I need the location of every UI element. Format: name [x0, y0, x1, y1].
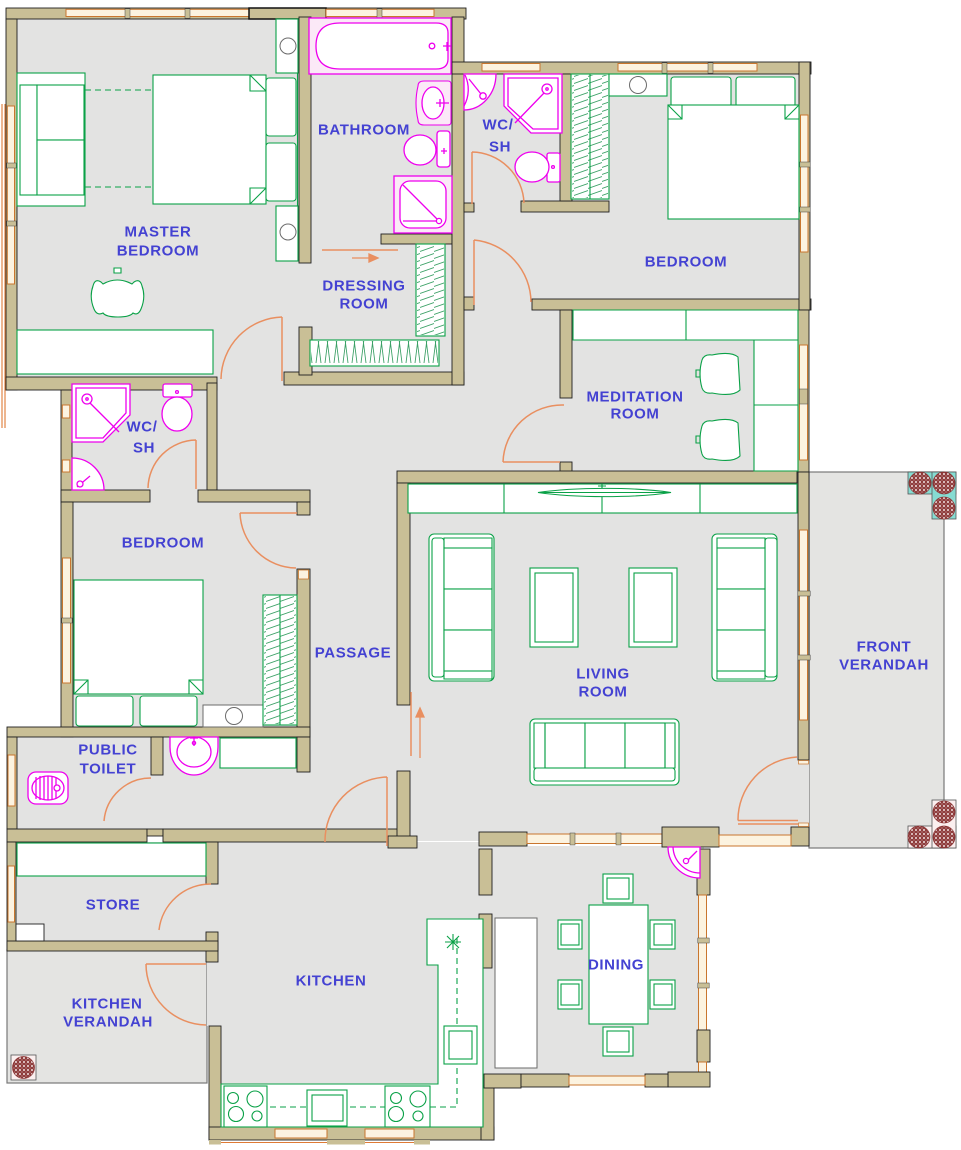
svg-text:STORE: STORE: [86, 897, 140, 914]
svg-text:DRESSING: DRESSING: [322, 278, 405, 295]
svg-text:ROOM: ROOM: [578, 684, 627, 701]
svg-text:SH: SH: [133, 440, 155, 457]
svg-text:MEDITATION: MEDITATION: [586, 389, 683, 406]
svg-text:VERANDAH: VERANDAH: [839, 657, 929, 674]
svg-text:TOILET: TOILET: [80, 761, 137, 778]
svg-text:PASSAGE: PASSAGE: [315, 645, 391, 662]
svg-text:LIVING: LIVING: [576, 666, 630, 683]
svg-text:KITCHEN: KITCHEN: [72, 996, 143, 1013]
svg-text:BEDROOM: BEDROOM: [117, 243, 200, 260]
svg-text:WC/: WC/: [127, 419, 158, 436]
svg-text:FRONT: FRONT: [857, 639, 912, 656]
svg-text:KITCHEN: KITCHEN: [296, 973, 367, 990]
svg-text:MASTER: MASTER: [125, 224, 192, 241]
svg-text:PUBLIC: PUBLIC: [78, 742, 137, 759]
svg-text:BATHROOM: BATHROOM: [318, 122, 410, 139]
svg-text:SH: SH: [489, 139, 511, 156]
svg-text:BEDROOM: BEDROOM: [645, 254, 728, 271]
svg-text:BEDROOM: BEDROOM: [122, 535, 205, 552]
svg-text:ROOM: ROOM: [610, 406, 659, 423]
svg-text:WC/: WC/: [483, 117, 514, 134]
svg-text:DINING: DINING: [588, 957, 644, 974]
svg-text:ROOM: ROOM: [339, 296, 388, 313]
svg-text:VERANDAH: VERANDAH: [63, 1014, 153, 1031]
